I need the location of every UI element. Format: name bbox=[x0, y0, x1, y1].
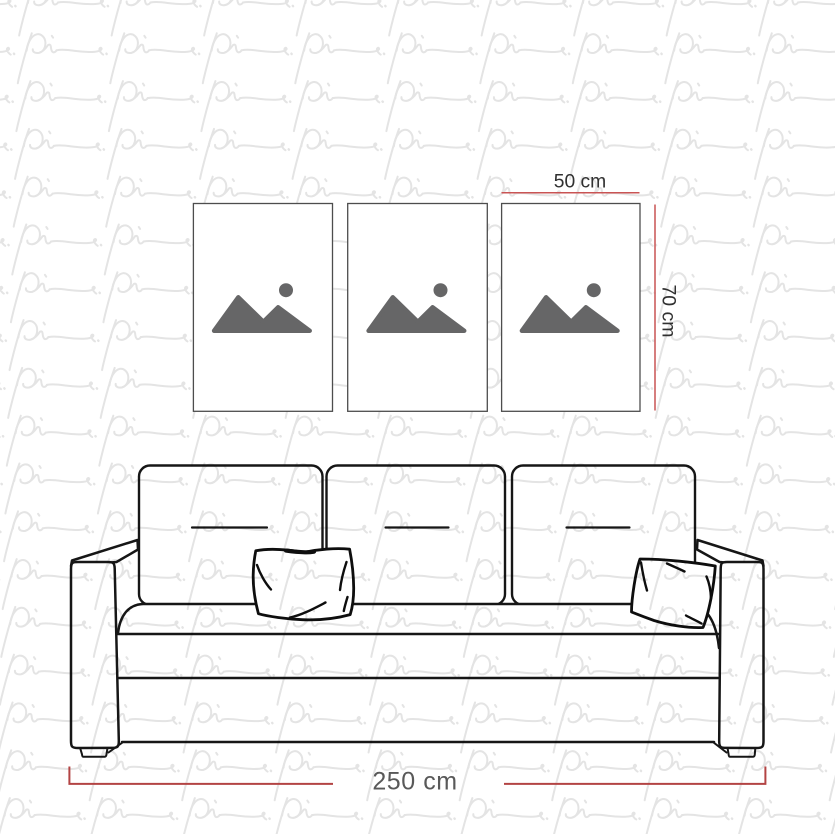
svg-text:50 cm: 50 cm bbox=[554, 171, 607, 192]
svg-text:250 cm: 250 cm bbox=[372, 768, 457, 796]
svg-text:70 cm: 70 cm bbox=[658, 284, 680, 337]
